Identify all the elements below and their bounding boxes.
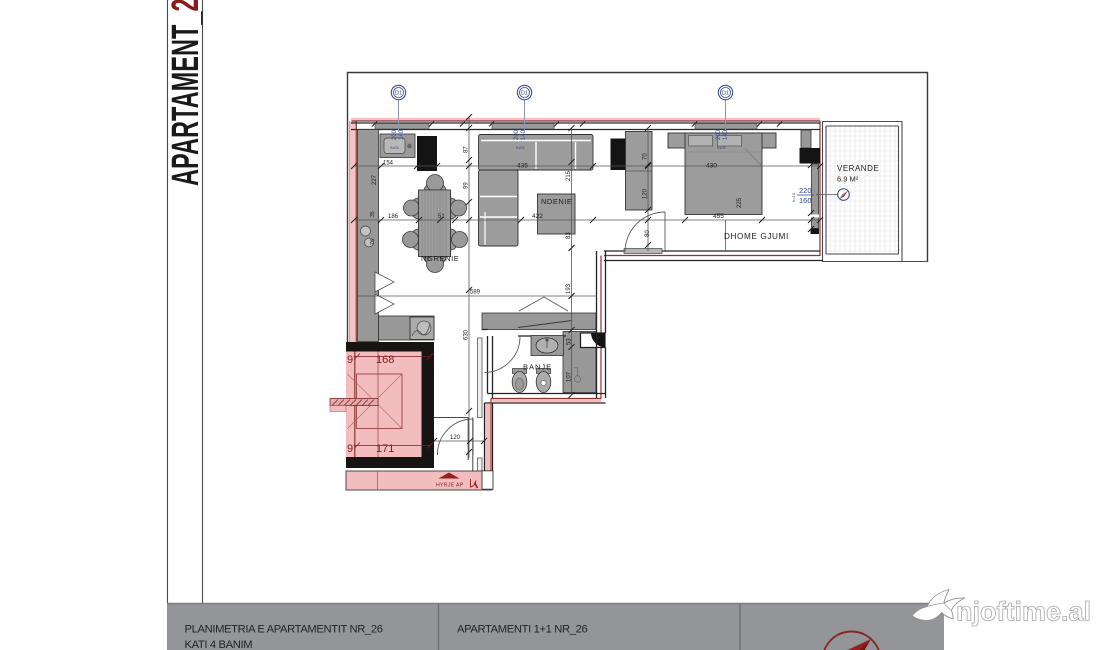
svg-text:430: 430 (706, 163, 717, 170)
svg-text:225: 225 (737, 197, 743, 208)
svg-text:APARTAMENTI 1+1 NR_26: APARTAMENTI 1+1 NR_26 (457, 624, 587, 636)
svg-text:200: 200 (392, 129, 398, 140)
svg-text:215: 215 (566, 170, 572, 181)
svg-text:83: 83 (566, 232, 572, 239)
svg-text:168: 168 (376, 354, 394, 366)
svg-text:99: 99 (464, 182, 470, 189)
svg-text:120: 120 (643, 188, 649, 199)
svg-text:140: 140 (399, 129, 405, 140)
svg-text:422: 422 (532, 213, 543, 220)
svg-text:227: 227 (372, 174, 378, 185)
svg-text:njoftime.al: njoftime.al (956, 597, 1091, 627)
svg-text:53: 53 (567, 338, 573, 345)
svg-text:VERANDE: VERANDE (837, 164, 879, 173)
svg-text:h=10: h=10 (791, 192, 796, 202)
svg-text:51: 51 (438, 214, 445, 220)
svg-text:160: 160 (799, 196, 812, 205)
svg-text:193: 193 (566, 283, 572, 294)
svg-text:PLANIMETRIA E APARTAMENTIT NR_: PLANIMETRIA E APARTAMENTIT NR_26 (185, 624, 383, 636)
svg-text:435: 435 (517, 163, 528, 170)
svg-text:140: 140 (521, 129, 527, 140)
svg-text:171: 171 (376, 443, 394, 455)
svg-text:DHOME GJUMI: DHOME GJUMI (724, 232, 789, 241)
svg-text:Ks05: Ks05 (516, 146, 525, 150)
svg-text:D1: D1 (395, 91, 402, 97)
svg-text:6.9 M²: 6.9 M² (837, 175, 859, 184)
svg-text:NDENIE: NDENIE (541, 197, 572, 206)
svg-text:107: 107 (567, 371, 573, 382)
svg-text:87: 87 (464, 146, 470, 153)
svg-text:80: 80 (645, 230, 651, 237)
svg-text:Ks05: Ks05 (390, 146, 399, 150)
svg-text:630: 630 (464, 329, 470, 340)
svg-text:120: 120 (450, 435, 461, 441)
svg-text:D1: D1 (722, 91, 729, 97)
svg-text:154: 154 (383, 161, 394, 167)
svg-text:455: 455 (713, 213, 724, 220)
svg-text:APARTAMENT_2: APARTAMENT_2 (163, 0, 206, 186)
svg-text:35: 35 (370, 211, 376, 217)
svg-text:200: 200 (716, 129, 722, 140)
svg-text:220: 220 (799, 186, 812, 195)
svg-text:NGRENIE: NGRENIE (421, 254, 459, 263)
svg-text:186: 186 (388, 214, 399, 220)
svg-text:589: 589 (470, 290, 481, 296)
svg-text:70: 70 (643, 153, 649, 160)
svg-text:BANJE: BANJE (523, 363, 552, 372)
svg-text:KATI 4 BANIM: KATI 4 BANIM (185, 639, 253, 650)
svg-text:D1: D1 (521, 91, 528, 97)
svg-text:9: 9 (347, 443, 353, 455)
svg-text:Ks05: Ks05 (717, 146, 726, 150)
svg-text:HYRJE AP: HYRJE AP (436, 483, 464, 489)
svg-text:9: 9 (347, 354, 353, 366)
svg-text:76: 76 (370, 239, 376, 245)
svg-text:200: 200 (514, 129, 520, 140)
svg-text:140: 140 (723, 129, 729, 140)
